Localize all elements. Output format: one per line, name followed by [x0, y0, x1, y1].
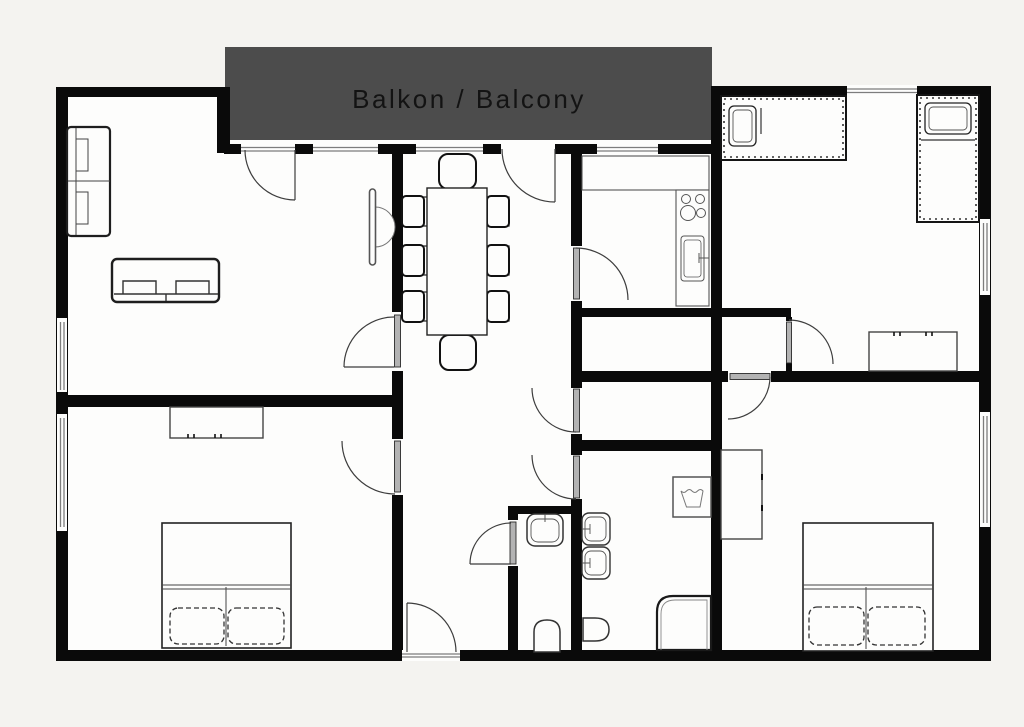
- svg-text:Balkon / Balcony: Balkon / Balcony: [352, 84, 586, 114]
